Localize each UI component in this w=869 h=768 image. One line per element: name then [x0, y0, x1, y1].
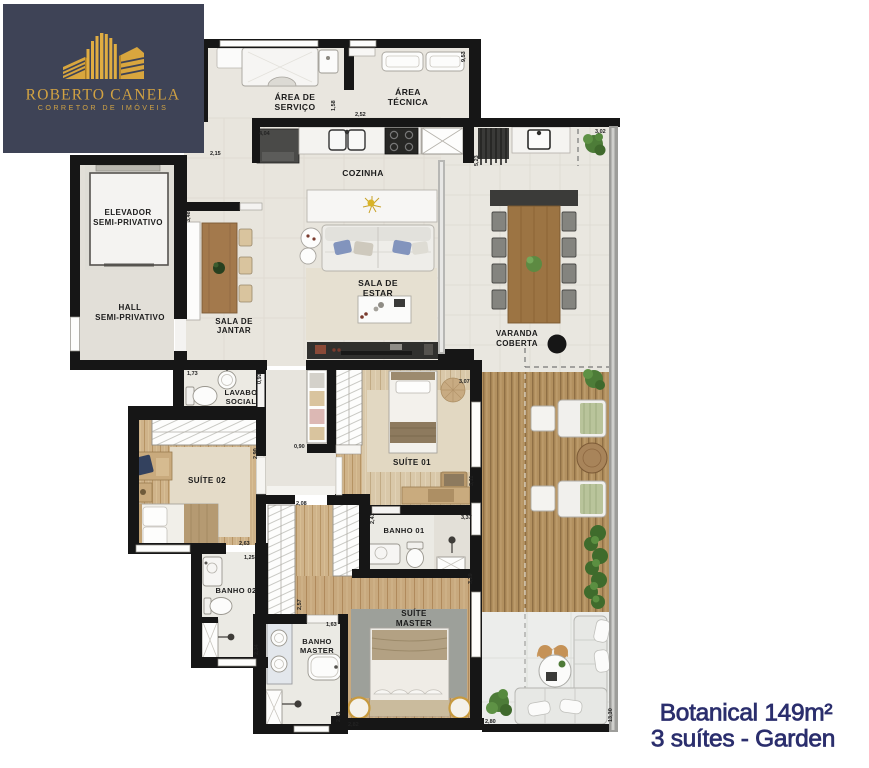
svg-text:HALL: HALL	[119, 303, 142, 312]
svg-text:SUÍTE 01: SUÍTE 01	[393, 458, 431, 467]
svg-text:13,30: 13,30	[608, 708, 614, 722]
svg-text:1,63: 1,63	[326, 622, 337, 628]
svg-text:CORRETOR DE IMÓVEIS: CORRETOR DE IMÓVEIS	[38, 103, 169, 112]
svg-text:MASTER: MASTER	[300, 646, 334, 655]
svg-text:3,02: 3,02	[595, 129, 606, 135]
svg-text:2,15: 2,15	[210, 151, 221, 157]
svg-text:5,23: 5,23	[474, 155, 480, 166]
svg-text:0,90: 0,90	[294, 444, 305, 450]
svg-text:2,82: 2,82	[348, 722, 359, 728]
svg-text:2,34: 2,34	[254, 643, 260, 655]
svg-text:ESTAR: ESTAR	[363, 288, 393, 298]
svg-text:3,07: 3,07	[459, 379, 470, 385]
svg-text:BANHO 01: BANHO 01	[383, 526, 424, 535]
svg-text:1,25: 1,25	[244, 555, 255, 561]
svg-text:2,52: 2,52	[355, 112, 366, 118]
svg-text:SUÍTE 02: SUÍTE 02	[188, 476, 226, 485]
svg-text:ELEVADOR: ELEVADOR	[104, 208, 151, 217]
svg-text:SEMI-PRIVATIVO: SEMI-PRIVATIVO	[95, 313, 165, 322]
svg-text:2,80: 2,80	[485, 719, 496, 725]
svg-text:3 suítes - Garden: 3 suítes - Garden	[651, 726, 835, 753]
svg-text:SEMI-PRIVATIVO: SEMI-PRIVATIVO	[93, 218, 163, 227]
svg-text:SUÍTE: SUÍTE	[401, 609, 427, 618]
svg-text:1,73: 1,73	[187, 371, 198, 377]
svg-text:VARANDA: VARANDA	[496, 329, 538, 338]
svg-text:1,58: 1,58	[331, 100, 337, 111]
svg-text:COZINHA: COZINHA	[342, 168, 384, 178]
svg-text:ÁREA: ÁREA	[395, 87, 421, 97]
svg-text:9,53: 9,53	[461, 51, 467, 62]
svg-text:LAVABO: LAVABO	[225, 388, 258, 397]
svg-text:TÉCNICA: TÉCNICA	[388, 97, 429, 107]
svg-text:Botanical 149m²: Botanical 149m²	[660, 700, 833, 727]
svg-text:SOCIAL: SOCIAL	[226, 397, 257, 406]
svg-text:SALA DE: SALA DE	[358, 278, 398, 288]
svg-text:3,48: 3,48	[186, 211, 192, 222]
svg-text:2,63: 2,63	[239, 541, 250, 547]
svg-text:0,92: 0,92	[257, 373, 263, 384]
svg-text:2,41: 2,41	[370, 513, 376, 524]
svg-text:BANHO: BANHO	[302, 637, 332, 646]
svg-text:2,57: 2,57	[297, 599, 303, 610]
svg-text:COBERTA: COBERTA	[496, 339, 538, 348]
svg-text:ROBERTO CANELA: ROBERTO CANELA	[26, 87, 181, 104]
svg-text:ÁREA DE: ÁREA DE	[275, 92, 316, 102]
svg-text:4,04: 4,04	[259, 131, 271, 137]
svg-text:BANHO 02: BANHO 02	[215, 586, 256, 595]
svg-text:2,08: 2,08	[296, 501, 307, 507]
svg-text:MASTER: MASTER	[396, 619, 432, 628]
svg-text:JANTAR: JANTAR	[217, 326, 251, 335]
svg-text:3,11: 3,11	[469, 476, 475, 486]
svg-text:SALA DE: SALA DE	[215, 317, 253, 326]
svg-text:3,29: 3,29	[468, 573, 474, 584]
svg-text:3,37: 3,37	[461, 515, 472, 521]
svg-text:2,90: 2,90	[253, 448, 259, 459]
svg-text:2,31: 2,31	[336, 711, 342, 722]
svg-text:SERVIÇO: SERVIÇO	[275, 102, 316, 112]
